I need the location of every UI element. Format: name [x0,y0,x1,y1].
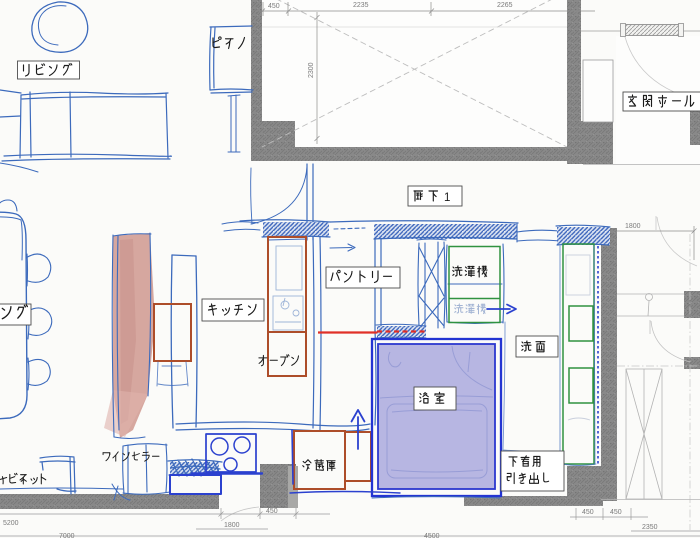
svg-text:5200: 5200 [3,520,19,527]
svg-text:1: 1 [444,192,450,204]
svg-text:7000: 7000 [59,533,75,538]
svg-text:450: 450 [582,509,594,516]
svg-text:450: 450 [610,509,622,516]
svg-text:2265: 2265 [497,2,513,9]
svg-text:1800: 1800 [224,522,240,529]
svg-text:4500: 4500 [424,533,440,538]
svg-text:2350: 2350 [642,524,658,531]
svg-text:2300: 2300 [308,62,315,78]
svg-text:2235: 2235 [353,2,369,9]
svg-text:450: 450 [268,3,280,10]
svg-text:1800: 1800 [625,223,641,230]
svg-text:450: 450 [266,508,278,515]
